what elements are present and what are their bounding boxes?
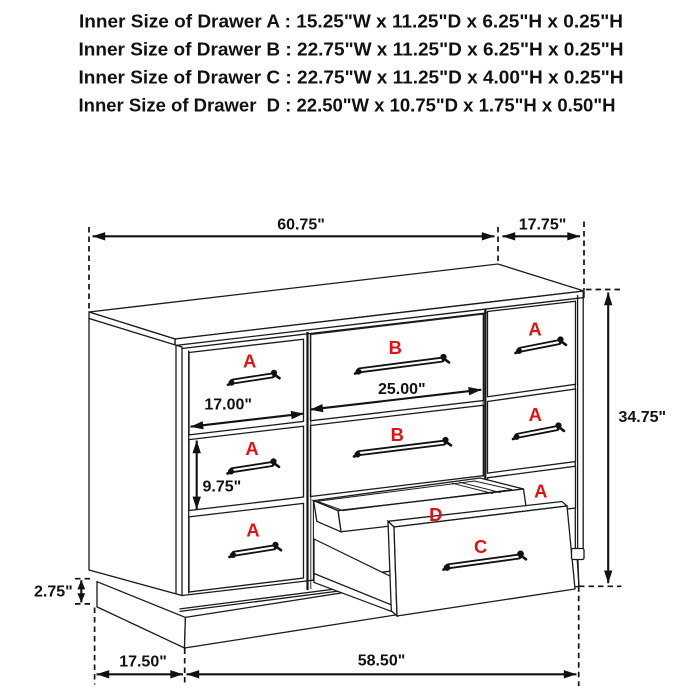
- svg-text:60.75": 60.75": [277, 217, 325, 234]
- svg-text:D: D: [429, 504, 442, 525]
- svg-text:C: C: [474, 536, 487, 557]
- svg-text:Inner Size of Drawer D : 22.5: Inner Size of Drawer D : 22.50"W x 10.75…: [79, 95, 616, 116]
- svg-text:B: B: [389, 337, 402, 358]
- svg-text:17.75": 17.75": [519, 217, 567, 234]
- svg-text:B: B: [391, 424, 404, 445]
- svg-text:A: A: [243, 351, 256, 372]
- svg-text:Inner Size of Drawer A : 15.25: Inner Size of Drawer A : 15.25"W x 11.25…: [79, 11, 623, 32]
- svg-text:34.75": 34.75": [618, 409, 666, 426]
- svg-text:A: A: [529, 404, 542, 425]
- svg-text:A: A: [534, 481, 547, 502]
- svg-text:A: A: [246, 519, 259, 540]
- svg-text:Inner Size of Drawer C : 22.75: Inner Size of Drawer C : 22.75"W x 11.25…: [79, 67, 624, 88]
- svg-text:17.50": 17.50": [119, 654, 167, 671]
- svg-text:2.75": 2.75": [34, 584, 73, 601]
- svg-text:9.75": 9.75": [203, 478, 242, 495]
- svg-text:58.50": 58.50": [358, 653, 406, 670]
- svg-text:25.00": 25.00": [378, 381, 426, 398]
- svg-text:A: A: [528, 318, 541, 339]
- svg-text:17.00": 17.00": [204, 397, 252, 414]
- svg-text:A: A: [245, 438, 258, 459]
- svg-text:Inner Size of Drawer B : 22.75: Inner Size of Drawer B : 22.75"W x 11.25…: [79, 39, 624, 60]
